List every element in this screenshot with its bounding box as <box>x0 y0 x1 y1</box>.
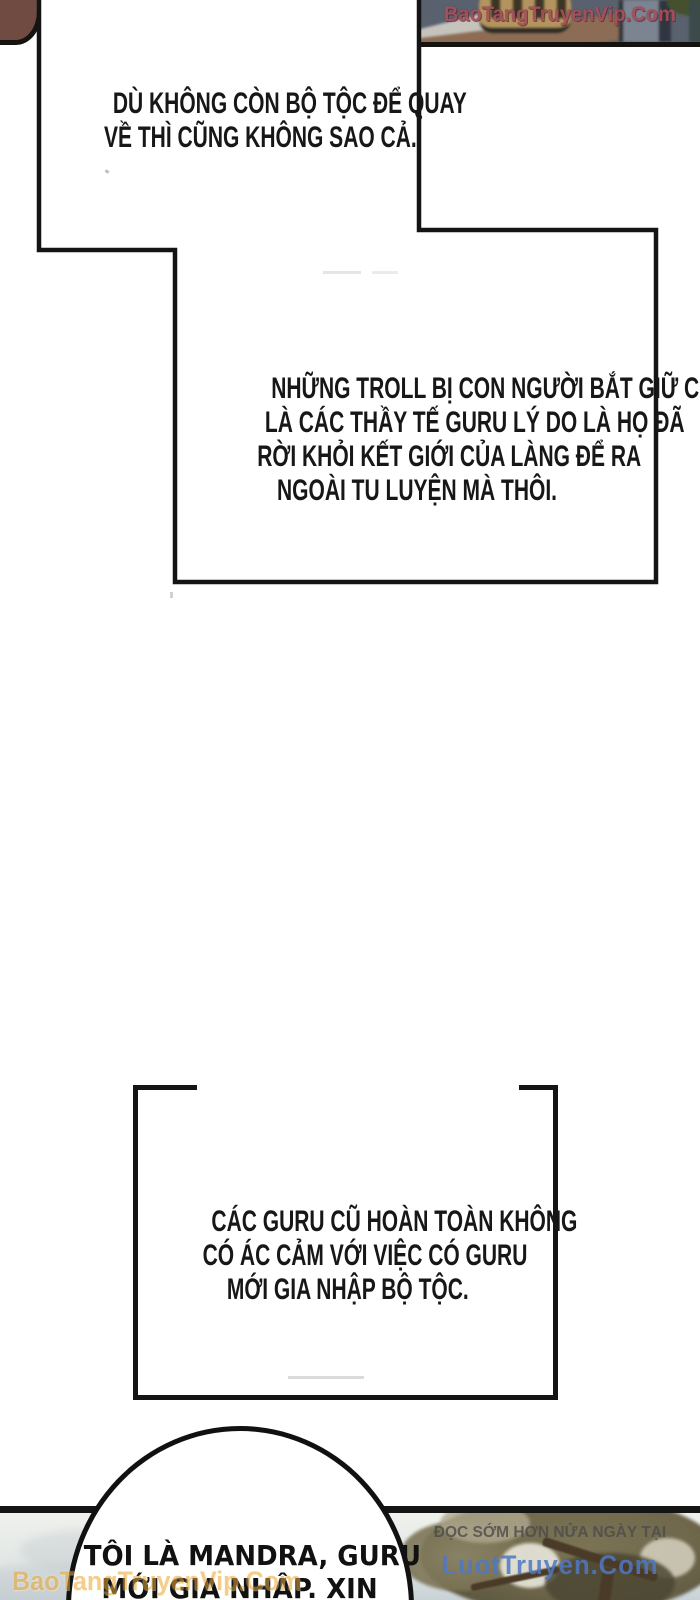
narration-box-1: DÙ KHÔNG CÒN BỘ TỘC ĐỂ QUAY VỀ THÌ CŨNG … <box>37 87 417 155</box>
watermark-luottruyen: LuotTruyen.Com <box>436 1550 664 1581</box>
narration-box-2: NHỮNG TROLL BỊ CON NGƯỜI BẮT GIỮ CHỈ LÀ … <box>175 372 658 508</box>
narration-line: NHỮNG TROLL BỊ CON NGƯỜI BẮT GIỮ CHỈ <box>175 372 658 406</box>
narration-text: NHỮNG TROLL BỊ CON NGƯỜI BẮT GIỮ CHỈ <box>271 372 700 406</box>
narration-line: CÓ ÁC CẢM VỚI VIỆC CÓ GURU <box>133 1239 563 1273</box>
narration-text: RỜI KHỎI KẾT GIỚI CỦA LÀNG ĐỂ RA <box>257 440 641 474</box>
narration-text: MỚI GIA NHẬP BỘ TỘC. <box>227 1273 469 1307</box>
narration-text: LÀ CÁC THẦY TẾ GURU LÝ DO LÀ HỌ ĐÃ <box>265 406 685 440</box>
narration-line: CÁC GURU CŨ HOÀN TOÀN KHÔNG <box>133 1205 563 1239</box>
watermark-read-earlier: ĐỌC SỚM HƠN NỬA NGÀY TẠI <box>419 1524 681 1542</box>
narration-text: CÓ ÁC CẢM VỚI VIỆC CÓ GURU <box>203 1239 528 1273</box>
scan-artifact <box>372 271 398 274</box>
narration-box-3: CÁC GURU CŨ HOÀN TOÀN KHÔNG CÓ ÁC CẢM VỚ… <box>133 1205 563 1307</box>
comic-page: DÙ KHÔNG CÒN BỘ TỘC ĐỂ QUAY VỀ THÌ CŨNG … <box>0 0 700 1600</box>
watermark-bottom-left: BaoTangTruyenVip.Com <box>12 1566 319 1597</box>
scan-artifact <box>288 1376 364 1379</box>
narration-text: DÙ KHÔNG CÒN BỘ TỘC ĐỂ QUAY <box>113 87 467 121</box>
narration-line: VỀ THÌ CŨNG KHÔNG SAO CẢ. <box>37 121 417 155</box>
narration-line: LÀ CÁC THẦY TẾ GURU LÝ DO LÀ HỌ ĐÃ <box>175 406 658 440</box>
scan-artifact <box>323 271 361 274</box>
narration-line: NGOÀI TU LUYỆN MÀ THÔI. <box>175 474 658 508</box>
watermark-top-right: BaoTangTruyenVip.Com <box>437 3 683 27</box>
narration-text: NGOÀI TU LUYỆN MÀ THÔI. <box>277 474 557 508</box>
scan-artifact <box>170 592 173 598</box>
narration-line: DÙ KHÔNG CÒN BỘ TỘC ĐỂ QUAY <box>37 87 417 121</box>
narration-line: MỚI GIA NHẬP BỘ TỘC. <box>133 1273 563 1307</box>
narration-text: CÁC GURU CŨ HOÀN TOÀN KHÔNG <box>211 1205 577 1239</box>
narration-text: VỀ THÌ CŨNG KHÔNG SAO CẢ. <box>104 121 417 155</box>
narration-line: RỜI KHỎI KẾT GIỚI CỦA LÀNG ĐỂ RA <box>175 440 658 474</box>
frame-top-gap <box>197 1083 519 1092</box>
